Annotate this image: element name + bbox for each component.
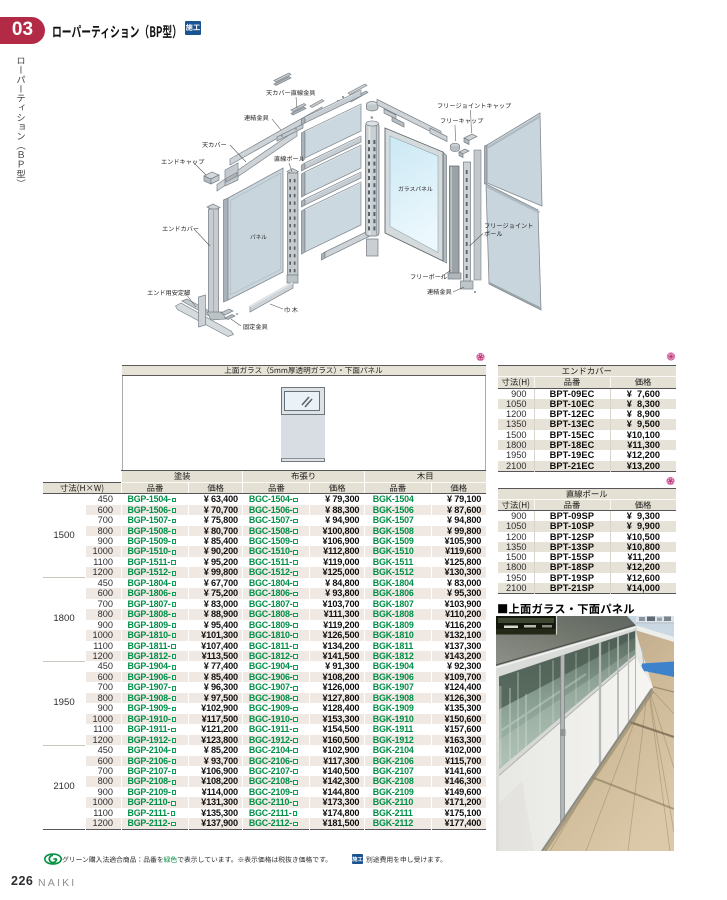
- svg-text:ガラスパネル: ガラスパネル: [398, 184, 433, 193]
- svg-text:エンドカバー: エンドカバー: [162, 224, 199, 233]
- svg-text:直線ポール: 直線ポール: [274, 154, 305, 163]
- svg-text:ポール: ポール: [484, 229, 503, 238]
- svg-text:フリーキャップ: フリーキャップ: [440, 116, 484, 125]
- svg-text:パネル: パネル: [250, 233, 267, 241]
- svg-text:連結金具: 連結金具: [244, 113, 269, 122]
- svg-text:エンド用安定脚: エンド用安定脚: [147, 288, 190, 297]
- svg-text:天カバー直線金具: 天カバー直線金具: [266, 88, 316, 97]
- svg-text:連結金具: 連結金具: [427, 287, 452, 296]
- svg-text:天カバー: 天カバー: [202, 140, 227, 149]
- svg-text:エンドキャップ: エンドキャップ: [161, 157, 205, 166]
- svg-text:フリージョイントキャップ: フリージョイントキャップ: [437, 101, 512, 110]
- svg-text:巾 木: 巾 木: [284, 305, 298, 314]
- svg-text:固定金具: 固定金具: [243, 322, 268, 331]
